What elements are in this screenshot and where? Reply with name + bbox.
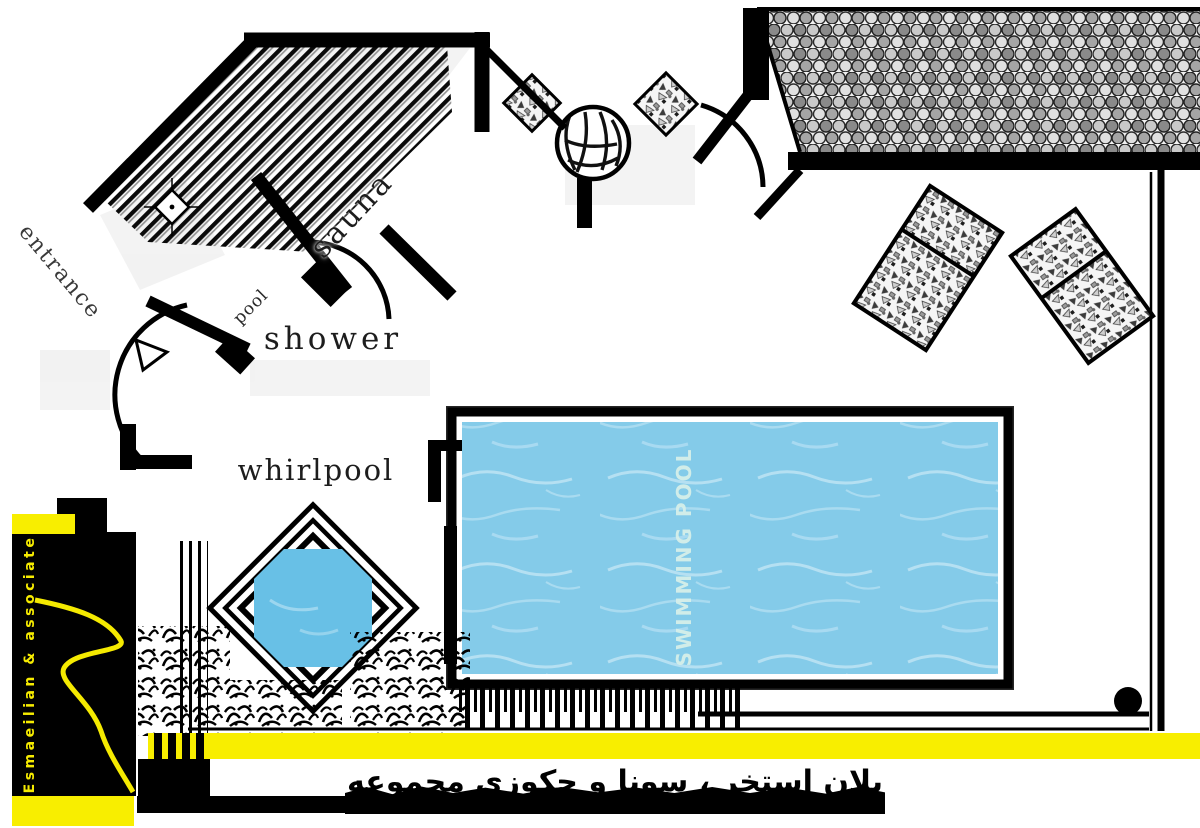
- label-shower: shower: [264, 321, 402, 357]
- label-swimming-pool: SWIMMING POOL: [672, 448, 696, 667]
- deck-paving-ticks: [456, 687, 740, 729]
- swimming-pool: [447, 407, 1013, 689]
- pool-plan-drawing: sauna entrance pool shower whirlpool SWI…: [0, 0, 1200, 828]
- wall-bar-top: [743, 8, 769, 100]
- yellow-band-ticks: [148, 733, 208, 759]
- right-boundary-wall: [1151, 170, 1161, 731]
- label-whirlpool: whirlpool: [238, 453, 395, 487]
- tree-planter: [557, 107, 629, 228]
- door-arrow: [136, 340, 167, 370]
- lounge-planter-left: [854, 186, 1002, 350]
- logo-swoosh: [0, 520, 150, 828]
- tree-dot: [1114, 687, 1142, 715]
- diamond-planter-left: [504, 75, 561, 132]
- pebble-terrace: [757, 9, 1200, 161]
- wall-corner-left-2: [120, 455, 192, 469]
- plan-linework: [0, 0, 1200, 828]
- door-leaf-1: [301, 259, 349, 307]
- yellow-band: [148, 733, 1200, 759]
- lounge-planter-right: [1011, 209, 1153, 363]
